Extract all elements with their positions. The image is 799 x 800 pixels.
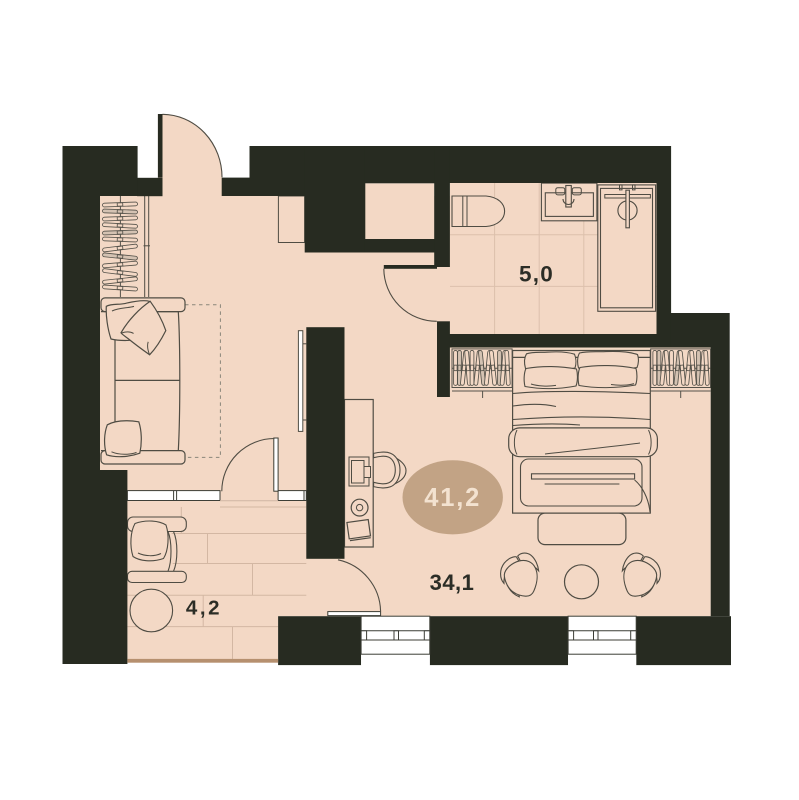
svg-text:5,0: 5,0 xyxy=(519,262,554,287)
svg-text:34,1: 34,1 xyxy=(430,570,475,595)
svg-text:4,2: 4,2 xyxy=(186,596,222,619)
svg-text:41,2: 41,2 xyxy=(424,484,481,512)
